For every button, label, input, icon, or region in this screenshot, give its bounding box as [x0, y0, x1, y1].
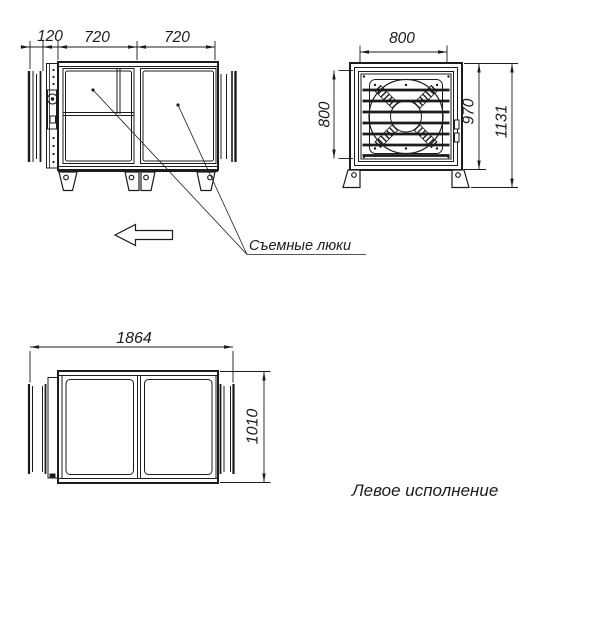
dim-label-800-top: 800 — [380, 30, 424, 47]
dim-label-800-left: 800 — [317, 85, 336, 145]
dim-label-120: 120 — [28, 28, 72, 45]
dim-label-1010: 1010 — [245, 397, 264, 457]
drawing-caption: Левое исполнение — [352, 482, 498, 501]
dim-label-970: 970 — [461, 82, 480, 142]
side-feet — [58, 172, 218, 191]
side-duct-left — [29, 64, 58, 169]
dim-label-720-right: 720 — [155, 29, 199, 46]
plan-duct-right — [221, 384, 234, 474]
plan-view — [29, 371, 234, 483]
plan-duct-left — [29, 378, 58, 479]
dim-label-1864: 1864 — [104, 330, 164, 348]
side-view — [29, 62, 236, 191]
technical-drawing-sheet: 120 720 720 800 800 970 1131 1864 1010 С… — [0, 0, 600, 643]
front-view — [343, 63, 469, 188]
flow-direction-arrow-icon — [115, 225, 173, 246]
front-feet — [343, 170, 469, 188]
side-duct-right — [221, 71, 236, 162]
drain-detail — [50, 474, 56, 479]
hatches-note: Съемные люки — [249, 239, 351, 255]
dim-label-1131: 1131 — [494, 92, 513, 152]
grille-bars — [363, 90, 450, 156]
dim-label-720-left: 720 — [75, 29, 119, 46]
